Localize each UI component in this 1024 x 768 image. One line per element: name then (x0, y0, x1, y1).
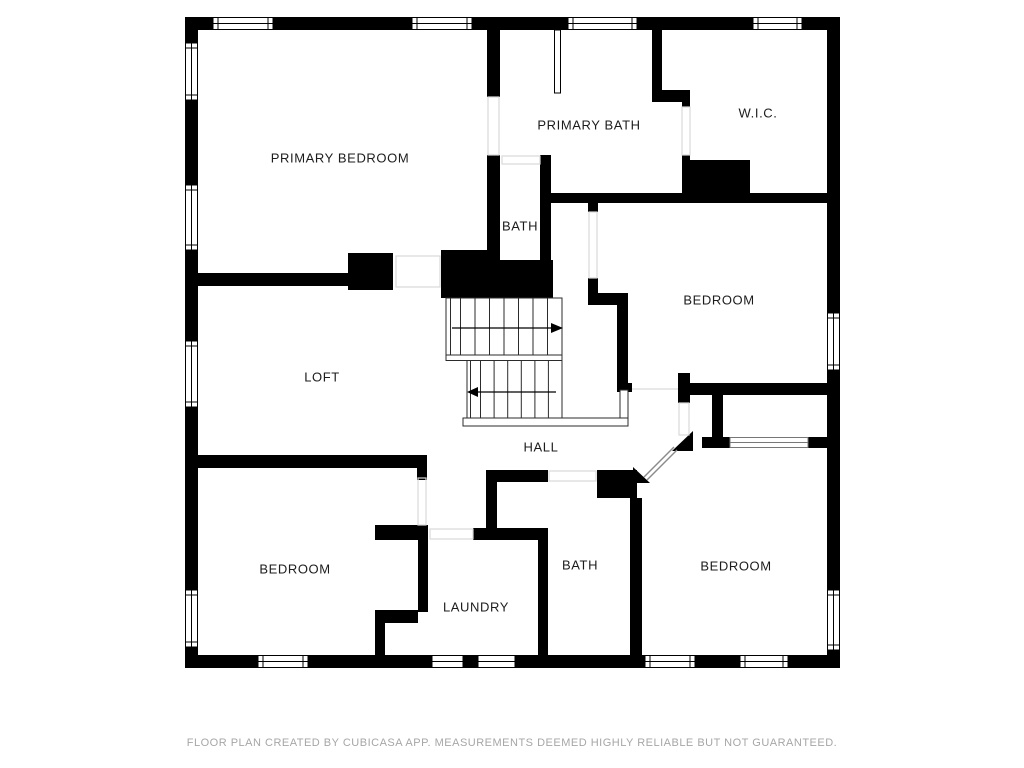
window-icon (740, 656, 788, 668)
window-icon (258, 656, 308, 668)
window-icon (568, 18, 637, 30)
window-icon (186, 43, 198, 100)
window-icon (828, 590, 840, 650)
room-label-loft: LOFT (304, 370, 340, 385)
room-label-bath-upper: BATH (502, 219, 538, 234)
room-label-bath-lower: BATH (562, 558, 598, 573)
stairs-divider-rail (446, 355, 562, 361)
stairs-bottom-railing (463, 418, 628, 426)
room-label-bedroom-right: BEDROOM (683, 293, 754, 308)
floor-plan: PRIMARY BEDROOM PRIMARY BATH W.I.C. BATH… (0, 0, 1024, 768)
bath-door-panel (555, 30, 561, 93)
window-icon (432, 656, 463, 668)
closet-sliding-door (730, 438, 808, 448)
footer-disclaimer: FLOOR PLAN CREATED BY CUBICASA APP. MEAS… (0, 737, 1024, 749)
room-label-bedroom-lower-left: BEDROOM (259, 562, 330, 577)
window-icon (186, 341, 198, 407)
stairs-right-railing (620, 390, 628, 418)
room-label-primary-bath: PRIMARY BATH (537, 118, 640, 133)
room-label-hall: HALL (524, 440, 559, 455)
window-icon (828, 313, 840, 370)
window-icon (478, 656, 515, 668)
window-icon (213, 18, 273, 30)
window-icon (645, 656, 695, 668)
stairs-lower-flight (467, 361, 562, 421)
room-label-bedroom-lower-right: BEDROOM (700, 559, 771, 574)
window-icon (753, 18, 802, 30)
floor-plan-canvas (0, 0, 1024, 768)
window-icon (186, 590, 198, 647)
room-label-wic: W.I.C. (739, 106, 778, 121)
window-icon (186, 185, 198, 250)
room-label-primary-bedroom: PRIMARY BEDROOM (271, 151, 410, 166)
room-label-laundry: LAUNDRY (443, 600, 509, 615)
window-icon (412, 18, 472, 30)
